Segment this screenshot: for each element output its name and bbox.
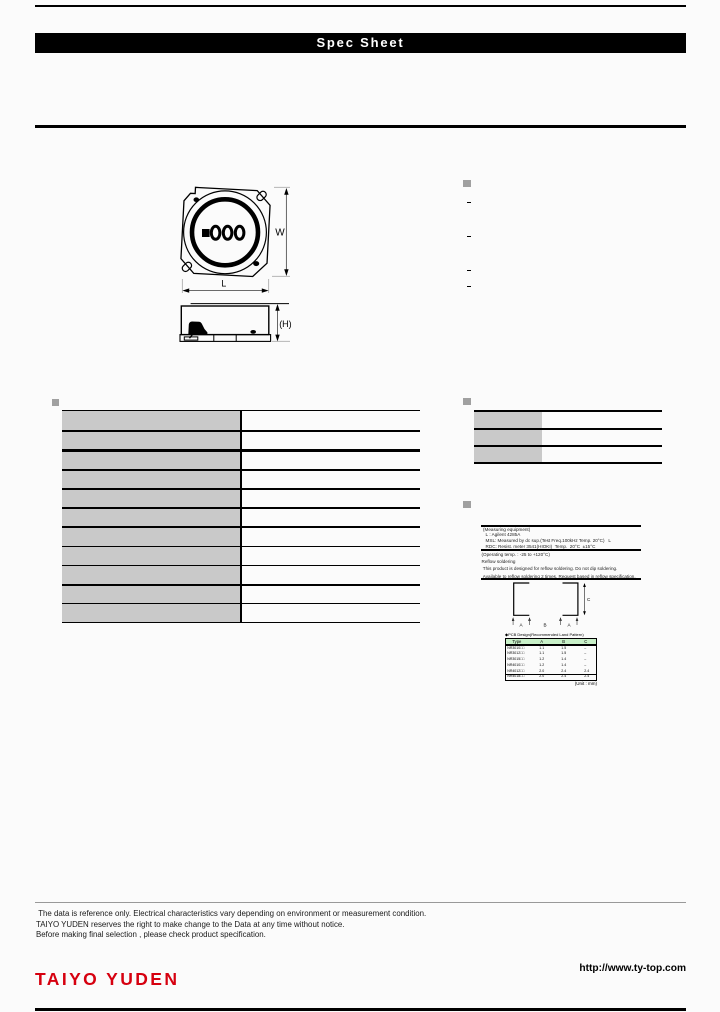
svg-text:A: A <box>567 622 571 627</box>
svg-text:B: B <box>543 622 546 627</box>
svg-text:(H): (H) <box>279 319 292 329</box>
svg-text:C: C <box>587 597 591 602</box>
svg-text:A: A <box>519 622 523 627</box>
svg-text:L: L <box>221 279 226 289</box>
svg-text:W: W <box>275 228 285 239</box>
